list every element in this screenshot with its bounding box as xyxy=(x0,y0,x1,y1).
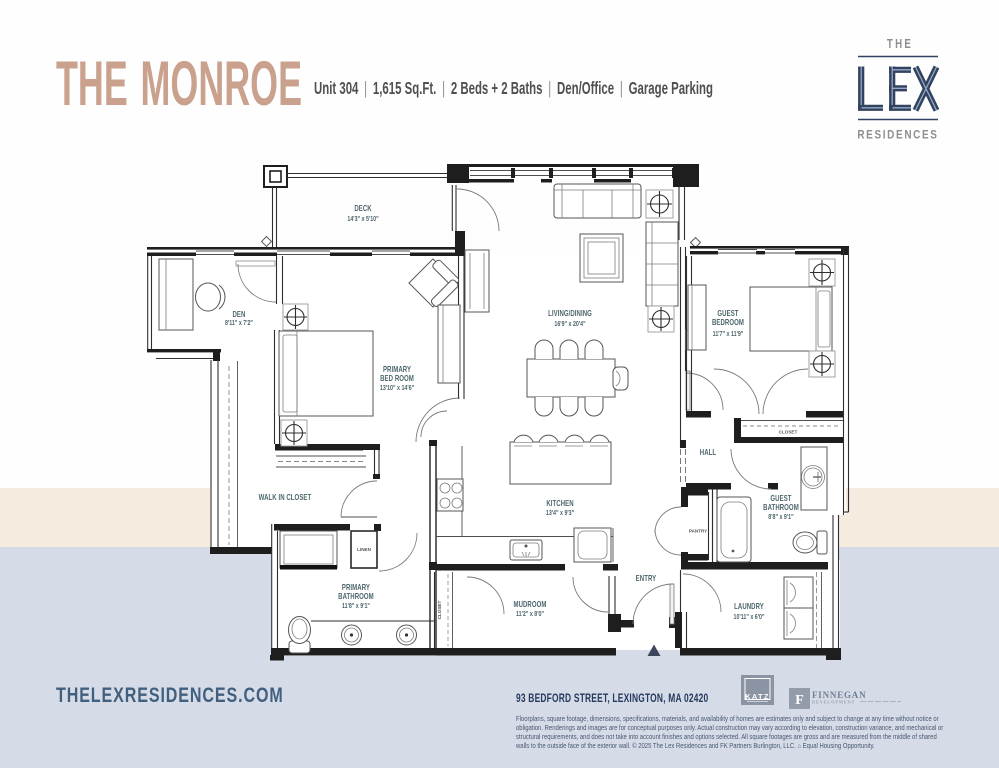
svg-text:FINNEGAN: FINNEGAN xyxy=(812,690,866,700)
svg-text:8'11" x 7'2": 8'11" x 7'2" xyxy=(225,319,253,327)
svg-text:WALK IN CLOSET: WALK IN CLOSET xyxy=(259,492,312,502)
svg-text:MUDROOM: MUDROOM xyxy=(513,599,546,609)
svg-text:14'3" x 5'10": 14'3" x 5'10" xyxy=(347,215,378,223)
svg-text:KATZ: KATZ xyxy=(745,692,770,701)
svg-text:F: F xyxy=(795,693,804,708)
svg-text:DEN: DEN xyxy=(232,309,245,319)
svg-text:BED ROOM: BED ROOM xyxy=(380,373,414,383)
svg-text:LIVING/DINING: LIVING/DINING xyxy=(548,308,592,318)
svg-text:11'7" x 11'9": 11'7" x 11'9" xyxy=(713,330,744,338)
svg-text:11'2" x 8'0": 11'2" x 8'0" xyxy=(516,610,544,618)
svg-text:13'4" x 9'3": 13'4" x 9'3" xyxy=(546,509,574,517)
svg-text:11'8" x 9'1": 11'8" x 9'1" xyxy=(342,602,370,610)
svg-text:CLOSET: CLOSET xyxy=(437,600,442,619)
svg-text:DEVELOPMENT: DEVELOPMENT xyxy=(812,700,855,705)
svg-text:ENTRY: ENTRY xyxy=(636,573,657,583)
svg-text:CLOSET: CLOSET xyxy=(779,430,798,435)
svg-text:16'9" x 20'4": 16'9" x 20'4" xyxy=(554,320,585,328)
svg-text:BATHROOM: BATHROOM xyxy=(338,591,374,601)
svg-text:BEDROOM: BEDROOM xyxy=(712,317,744,327)
svg-text:LINEN: LINEN xyxy=(357,547,371,552)
svg-text:THE: THE xyxy=(887,38,913,52)
svg-text:LAUNDRY: LAUNDRY xyxy=(734,601,764,611)
svg-text:BATHROOM: BATHROOM xyxy=(763,502,799,512)
svg-text:PANTRY: PANTRY xyxy=(689,529,707,534)
svg-text:DECK: DECK xyxy=(354,203,372,213)
svg-text:HALL: HALL xyxy=(700,447,717,457)
svg-text:KITCHEN: KITCHEN xyxy=(546,498,573,508)
svg-text:RESIDENCES: RESIDENCES xyxy=(857,129,938,142)
svg-text:13'10" x 14'6": 13'10" x 14'6" xyxy=(380,384,414,392)
svg-text:10'11" x 6'0": 10'11" x 6'0" xyxy=(734,613,765,621)
svg-text:8'8" x 9'1": 8'8" x 9'1" xyxy=(768,513,793,521)
